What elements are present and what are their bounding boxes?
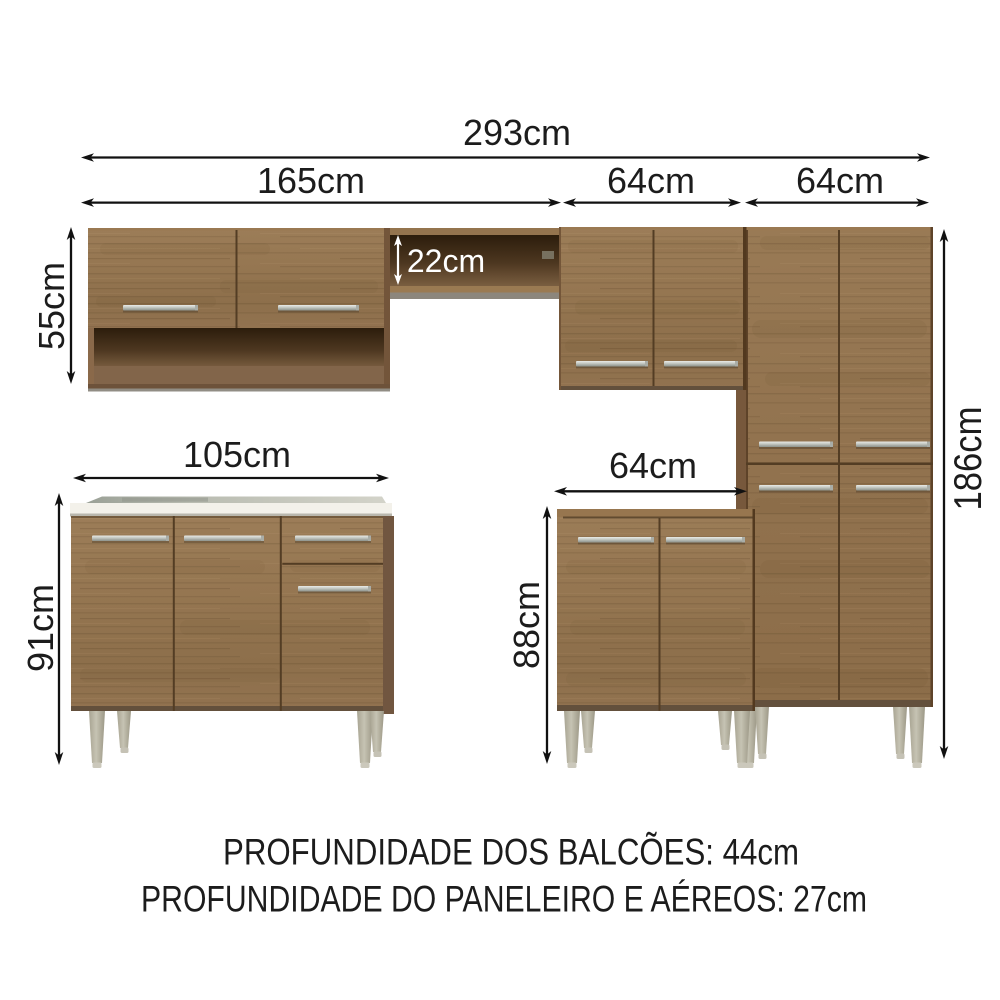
svg-text:88cm: 88cm	[506, 581, 547, 669]
svg-text:165cm: 165cm	[257, 160, 365, 201]
svg-text:64cm: 64cm	[607, 160, 695, 201]
svg-text:PROFUNDIDADE DO PANELEIRO E AÉ: PROFUNDIDADE DO PANELEIRO E AÉREOS: 27cm	[141, 879, 867, 920]
svg-text:22cm: 22cm	[407, 243, 485, 279]
svg-text:64cm: 64cm	[609, 445, 697, 486]
svg-text:91cm: 91cm	[20, 584, 61, 672]
svg-text:PROFUNDIDADE DOS BALCÕES: 44cm: PROFUNDIDADE DOS BALCÕES: 44cm	[223, 832, 799, 873]
svg-text:293cm: 293cm	[463, 112, 571, 153]
svg-text:186cm: 186cm	[947, 407, 990, 511]
svg-text:64cm: 64cm	[796, 160, 884, 201]
svg-text:55cm: 55cm	[31, 262, 72, 350]
svg-text:105cm: 105cm	[183, 434, 291, 475]
